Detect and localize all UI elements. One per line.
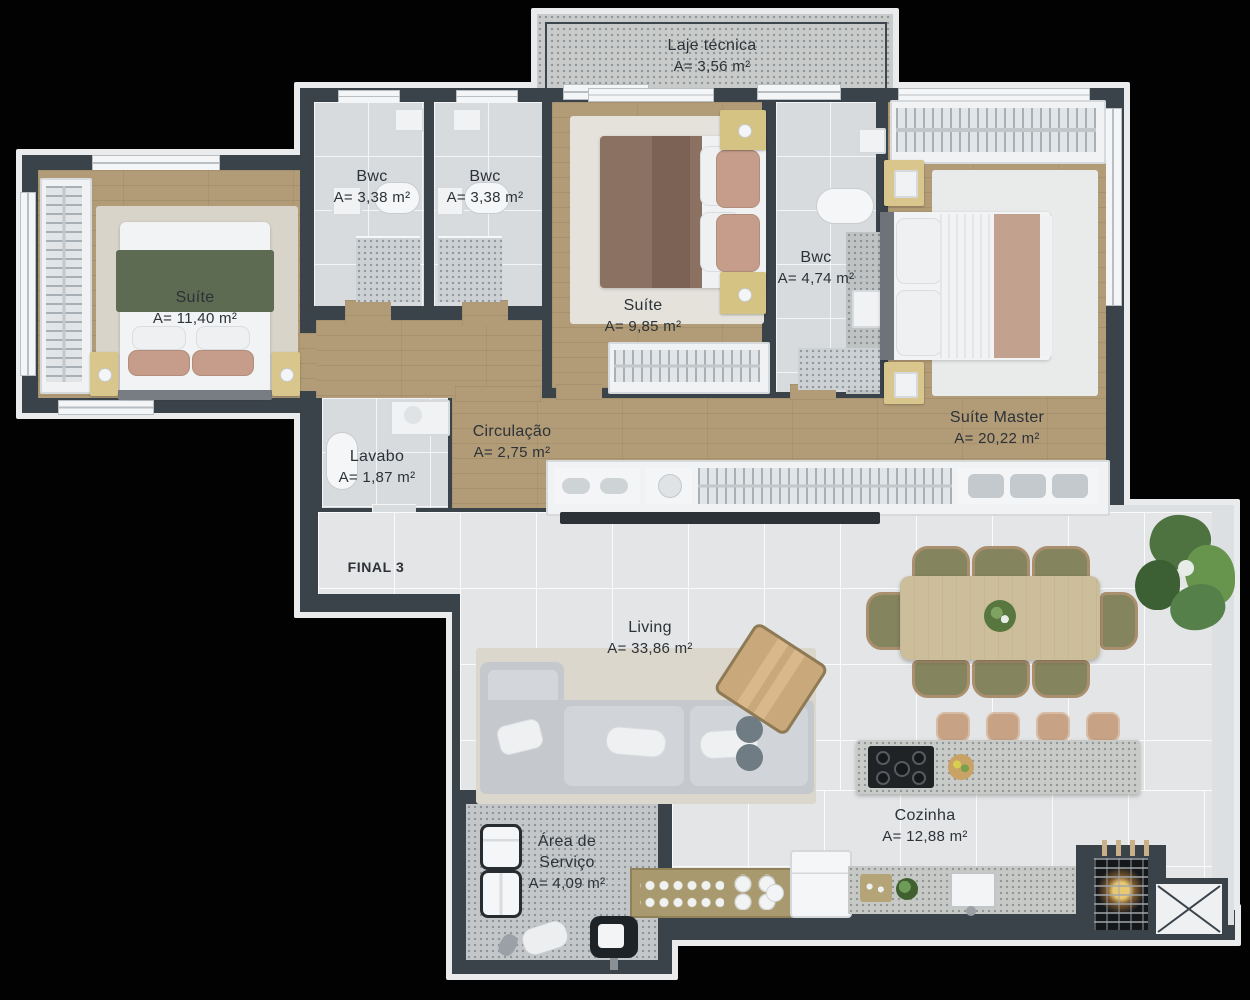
shaft-x-mark <box>1156 884 1222 934</box>
cooktop-burner <box>912 771 926 785</box>
tv-console <box>560 512 880 524</box>
cushion <box>1052 474 1088 498</box>
room-area: A= 12,88 m² <box>882 827 967 847</box>
door-opening <box>299 333 317 391</box>
decor-bowl <box>658 474 682 498</box>
sink-basin <box>404 406 422 424</box>
room-name: Área de <box>529 832 606 853</box>
floor-plan: Laje técnica A= 3,56 m² Bwc A= 3,38 m² B… <box>0 0 1250 1000</box>
bed-folded-blanket <box>652 136 690 288</box>
cooktop-burner <box>876 771 890 785</box>
teapot <box>766 884 784 902</box>
label-suite2: Suíte A= 9,85 m² <box>605 296 682 336</box>
cushion <box>1010 474 1046 498</box>
room-area: A= 4,74 m² <box>778 269 855 289</box>
shelf-item <box>600 478 628 494</box>
room-name: Circulação <box>473 422 552 443</box>
lamp <box>894 170 918 198</box>
room-name: Lavabo <box>339 447 416 468</box>
dining-chair <box>1100 592 1138 650</box>
room-name: Suíte <box>153 288 237 309</box>
cups <box>640 874 724 908</box>
stool <box>936 712 970 742</box>
entry-floor <box>318 512 460 594</box>
headboard <box>118 390 272 400</box>
window <box>20 192 36 376</box>
room-name: Suíte <box>605 296 682 317</box>
lamp <box>98 368 112 382</box>
sink <box>852 290 882 328</box>
cooktop-burner <box>912 751 926 765</box>
shower-tray <box>356 238 420 302</box>
table-centerpiece-plant <box>984 600 1016 632</box>
stool <box>1036 712 1070 742</box>
counter-plant <box>896 878 918 900</box>
room-name: Bwc <box>334 167 411 188</box>
kitchen-sink <box>950 872 996 908</box>
room-area: A= 9,85 m² <box>605 317 682 337</box>
window <box>58 400 154 415</box>
toilet <box>816 188 874 224</box>
vanity <box>452 108 482 132</box>
bed-duvet <box>940 214 994 358</box>
lamp <box>894 372 918 398</box>
refrigerator <box>790 850 852 918</box>
duct-shaft <box>1156 884 1222 934</box>
skewer-handle <box>1144 840 1149 856</box>
bed-blanket <box>994 214 1040 358</box>
shower-tray <box>798 348 880 390</box>
pillow <box>896 290 942 356</box>
dryer <box>480 870 522 918</box>
room-name: Laje técnica <box>668 36 757 57</box>
lamp <box>738 288 752 302</box>
room-area: A= 11,40 m² <box>153 309 237 329</box>
door-opening <box>345 300 391 326</box>
washer <box>480 824 522 870</box>
label-lavabo: Lavabo A= 1,87 m² <box>339 447 416 487</box>
serving-tray <box>860 874 892 902</box>
dining-chair <box>866 592 904 650</box>
stool <box>1086 712 1120 742</box>
lamp <box>280 368 294 382</box>
lamp <box>738 124 752 138</box>
closet-hanging-clothes <box>896 108 1096 152</box>
pillow <box>192 350 254 376</box>
label-bwc2: Bwc A= 3,38 m² <box>447 167 524 207</box>
pillow <box>128 350 190 376</box>
room-name: Bwc <box>447 167 524 188</box>
unit-label: FINAL 3 <box>348 559 405 575</box>
dining-chair <box>912 660 970 698</box>
fruit-bowl <box>948 754 974 780</box>
room-name: Living <box>607 618 692 639</box>
plant-flowers <box>1178 560 1194 576</box>
label-area-servico: Área de Serviço A= 4,09 m² <box>529 832 606 893</box>
wall <box>300 594 472 612</box>
wardrobe-hanging-clothes <box>614 350 760 382</box>
pillow <box>716 150 760 208</box>
sliding-glass-door <box>1104 108 1122 306</box>
laundry-sink-basin <box>598 924 624 948</box>
pillow <box>132 326 186 350</box>
window <box>757 84 841 100</box>
room-area: A= 3,38 m² <box>334 188 411 208</box>
faucet <box>966 906 976 916</box>
faucet <box>610 958 618 970</box>
pillow <box>605 725 667 758</box>
dining-chair <box>1032 660 1090 698</box>
pillow <box>196 326 250 350</box>
shower-tray <box>438 238 502 302</box>
pillow <box>716 214 760 272</box>
room-area: A= 20,22 m² <box>950 429 1044 449</box>
room-area: A= 33,86 m² <box>607 639 692 659</box>
label-bwc3: Bwc A= 4,74 m² <box>778 248 855 288</box>
skewer-handle <box>1116 840 1121 856</box>
pouf <box>736 744 763 771</box>
wardrobe-hanging-clothes <box>698 468 952 504</box>
room-name: Suíte Master <box>950 408 1044 429</box>
label-suite1: Suíte A= 11,40 m² <box>153 288 237 328</box>
label-suite-master: Suíte Master A= 20,22 m² <box>950 408 1044 448</box>
room-area: A= 2,75 m² <box>473 443 552 463</box>
cushion <box>968 474 1004 498</box>
room-name: Bwc <box>778 248 855 269</box>
cooktop-burner <box>894 761 910 777</box>
skewer-handle <box>1130 840 1135 856</box>
room-area: A= 3,38 m² <box>447 188 524 208</box>
dining-chair <box>972 660 1030 698</box>
room-area: A= 1,87 m² <box>339 468 416 488</box>
room-name: Cozinha <box>882 806 967 827</box>
skewer-handle <box>1102 840 1107 856</box>
label-final: FINAL 3 <box>348 558 405 576</box>
barbecue-grill <box>1094 858 1148 930</box>
door-opening <box>455 386 541 402</box>
headboard <box>880 212 894 360</box>
room-area: A= 3,56 m² <box>668 57 757 77</box>
pouf <box>736 716 763 743</box>
vanity <box>394 108 424 132</box>
shower-fixture <box>858 128 886 154</box>
door-opening <box>462 300 508 326</box>
door-opening <box>556 384 602 401</box>
cooktop-burner <box>876 751 890 765</box>
stool <box>986 712 1020 742</box>
room-name: Serviço <box>529 853 606 874</box>
shelf-item <box>562 478 590 494</box>
window <box>588 88 714 102</box>
label-laje-tecnica: Laje técnica A= 3,56 m² <box>668 36 757 76</box>
closet-hanging-clothes <box>46 186 82 382</box>
pillow <box>896 218 942 284</box>
bed-foot <box>1040 216 1052 356</box>
label-living: Living A= 33,86 m² <box>607 618 692 658</box>
window <box>92 155 220 171</box>
label-cozinha: Cozinha A= 12,88 m² <box>882 806 967 846</box>
room-area: A= 4,09 m² <box>529 874 606 894</box>
label-bwc1: Bwc A= 3,38 m² <box>334 167 411 207</box>
label-circulacao: Circulação A= 2,75 m² <box>473 422 552 462</box>
